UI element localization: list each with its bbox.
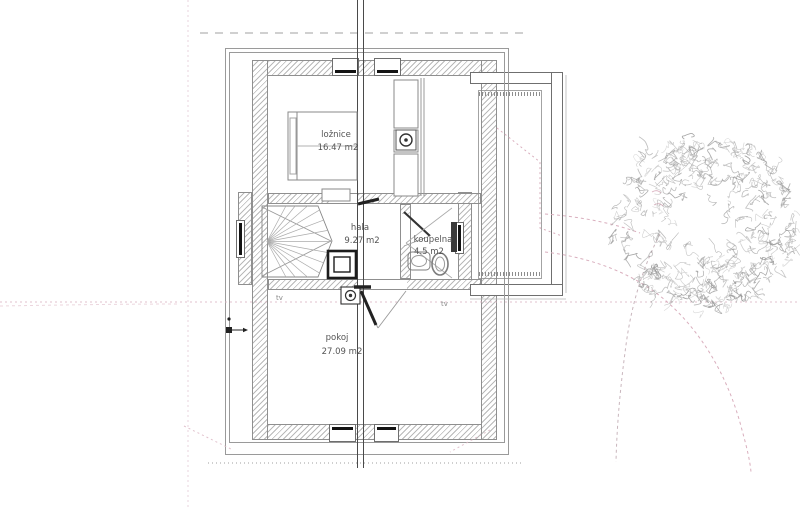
room-label-hala: hala [351, 223, 369, 233]
vent-fan-icon [396, 130, 416, 150]
balcony-inner-rail [470, 75, 566, 299]
tv-outlet-right: tv [441, 300, 448, 308]
room-area-hala: 9.27 m2 [344, 236, 379, 246]
floor-plan-canvas: ložnice 16.47 m2 hala 9.27 m2 koupelna 4… [0, 0, 800, 510]
dresser [322, 189, 350, 201]
reference-grid-lines [0, 0, 800, 510]
stove [328, 251, 356, 278]
staircase [262, 206, 332, 277]
room-label-koupelna: koupelna [414, 235, 453, 245]
room-door-swing [354, 287, 406, 328]
bedroom-door-leaf [358, 199, 379, 204]
room-label-pokoj: pokoj [326, 333, 349, 343]
room-area-loznice: 16.47 m2 [318, 143, 359, 153]
terrain-contours [0, 214, 751, 472]
section-line [358, 0, 364, 468]
tv-outlet-left: tv [276, 294, 283, 302]
plan-linework: ložnice 16.47 m2 hala 9.27 m2 koupelna 4… [0, 0, 800, 510]
room-area-pokoj: 27.09 m2 [322, 347, 363, 357]
balcony-terrain-dash [497, 128, 562, 236]
room-area-koupelna: 4.5 m2 [414, 247, 444, 257]
room-label-loznice: ložnice [321, 130, 351, 140]
flue-icon [341, 287, 360, 304]
eaves-outline [226, 49, 509, 455]
